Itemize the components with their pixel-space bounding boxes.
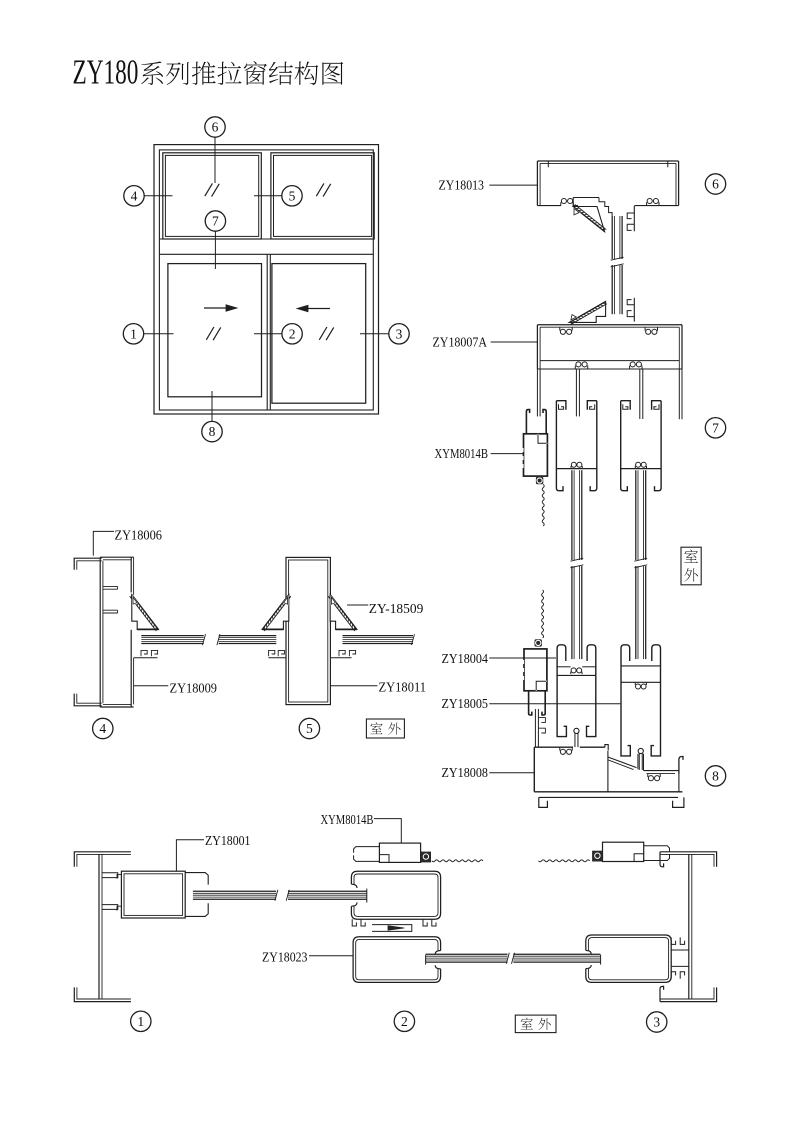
svg-text:6: 6	[712, 177, 719, 192]
svg-text:XYM8014B: XYM8014B	[435, 446, 489, 461]
svg-text:8: 8	[209, 424, 216, 439]
svg-text:ZY18008: ZY18008	[442, 765, 489, 780]
svg-text:ZY18007A: ZY18007A	[433, 335, 488, 350]
svg-text:8: 8	[712, 769, 719, 784]
svg-text:6: 6	[212, 120, 219, 135]
svg-text:1: 1	[130, 326, 137, 341]
svg-text:ZY18005: ZY18005	[442, 696, 489, 711]
svg-text:7: 7	[212, 214, 219, 229]
svg-text:ZY-18509: ZY-18509	[369, 601, 424, 616]
svg-text:1: 1	[137, 1014, 144, 1029]
svg-text:ZY18004: ZY18004	[442, 651, 489, 666]
svg-text:ZY18001: ZY18001	[205, 833, 251, 848]
svg-text:4: 4	[131, 188, 138, 203]
svg-text:3: 3	[396, 326, 403, 341]
svg-text:4: 4	[99, 721, 106, 736]
svg-text:ZY18006: ZY18006	[115, 528, 163, 543]
svg-text:ZY18009: ZY18009	[170, 681, 218, 696]
svg-text:7: 7	[712, 420, 719, 435]
svg-text:5: 5	[306, 721, 313, 736]
svg-text:2: 2	[289, 326, 296, 341]
svg-text:ZY18013: ZY18013	[439, 177, 485, 192]
svg-text:ZY180: ZY180	[73, 54, 139, 92]
svg-text:ZY18011: ZY18011	[379, 680, 427, 695]
svg-text:ZY18023: ZY18023	[262, 950, 308, 965]
svg-text:2: 2	[401, 1014, 408, 1029]
svg-text:XYM8014B: XYM8014B	[321, 812, 374, 827]
svg-text:5: 5	[289, 188, 296, 203]
svg-text:3: 3	[653, 1015, 660, 1030]
